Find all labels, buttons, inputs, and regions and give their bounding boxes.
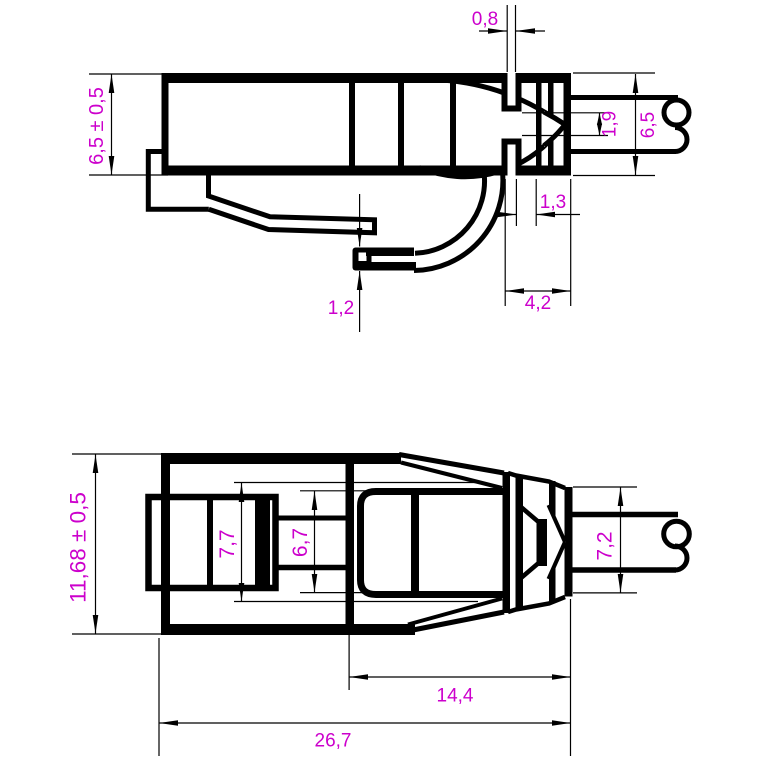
svg-text:1,9: 1,9 xyxy=(600,111,621,137)
svg-text:1,2: 1,2 xyxy=(328,298,354,319)
svg-text:1,3: 1,3 xyxy=(540,192,566,213)
svg-text:6,5: 6,5 xyxy=(638,112,659,138)
svg-text:14,4: 14,4 xyxy=(437,686,474,707)
svg-text:7,2: 7,2 xyxy=(594,531,617,560)
svg-text:6,7: 6,7 xyxy=(289,528,312,557)
svg-text:11,68 ± 0,5: 11,68 ± 0,5 xyxy=(66,492,91,603)
svg-text:4,2: 4,2 xyxy=(525,293,551,314)
svg-text:7,7: 7,7 xyxy=(216,529,239,558)
svg-text:6,5 ± 0,5: 6,5 ± 0,5 xyxy=(86,87,108,165)
svg-text:0,8: 0,8 xyxy=(472,9,498,30)
svg-text:26,7: 26,7 xyxy=(315,731,352,752)
